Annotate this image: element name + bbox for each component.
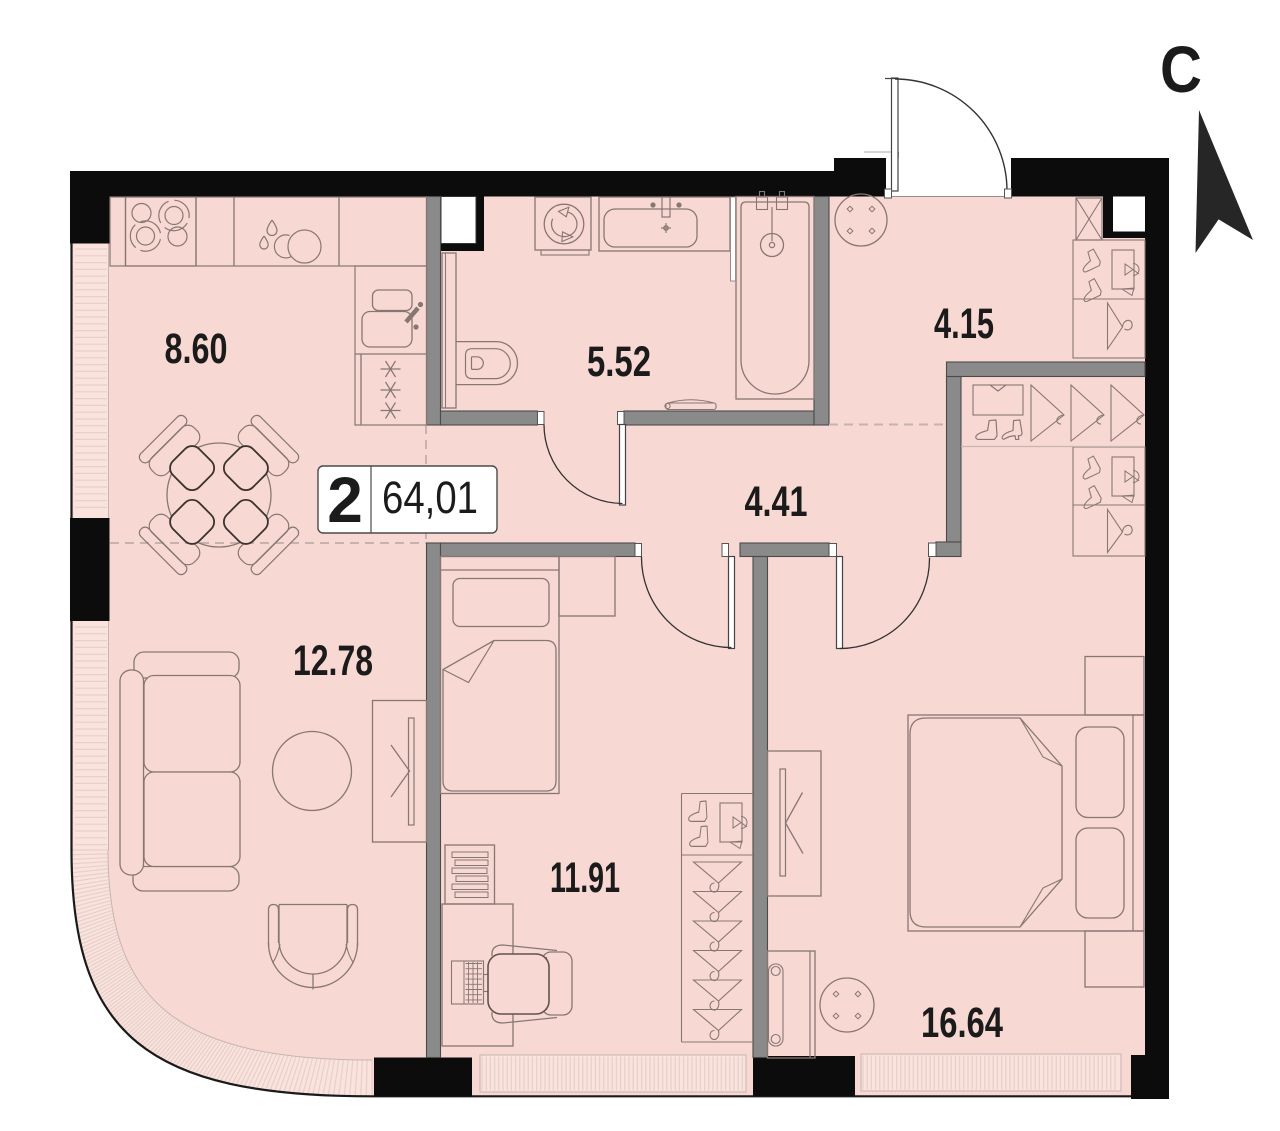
svg-text:64,01: 64,01 xyxy=(382,472,478,523)
svg-text:12.78: 12.78 xyxy=(293,637,373,685)
svg-text:2: 2 xyxy=(327,464,363,536)
svg-text:5.52: 5.52 xyxy=(587,338,651,386)
svg-text:8.60: 8.60 xyxy=(165,325,228,373)
svg-text:4.41: 4.41 xyxy=(745,478,808,526)
svg-text:11.91: 11.91 xyxy=(550,854,620,902)
svg-text:4.15: 4.15 xyxy=(934,300,994,348)
svg-text:С: С xyxy=(1160,32,1202,106)
svg-text:16.64: 16.64 xyxy=(921,999,1003,1047)
